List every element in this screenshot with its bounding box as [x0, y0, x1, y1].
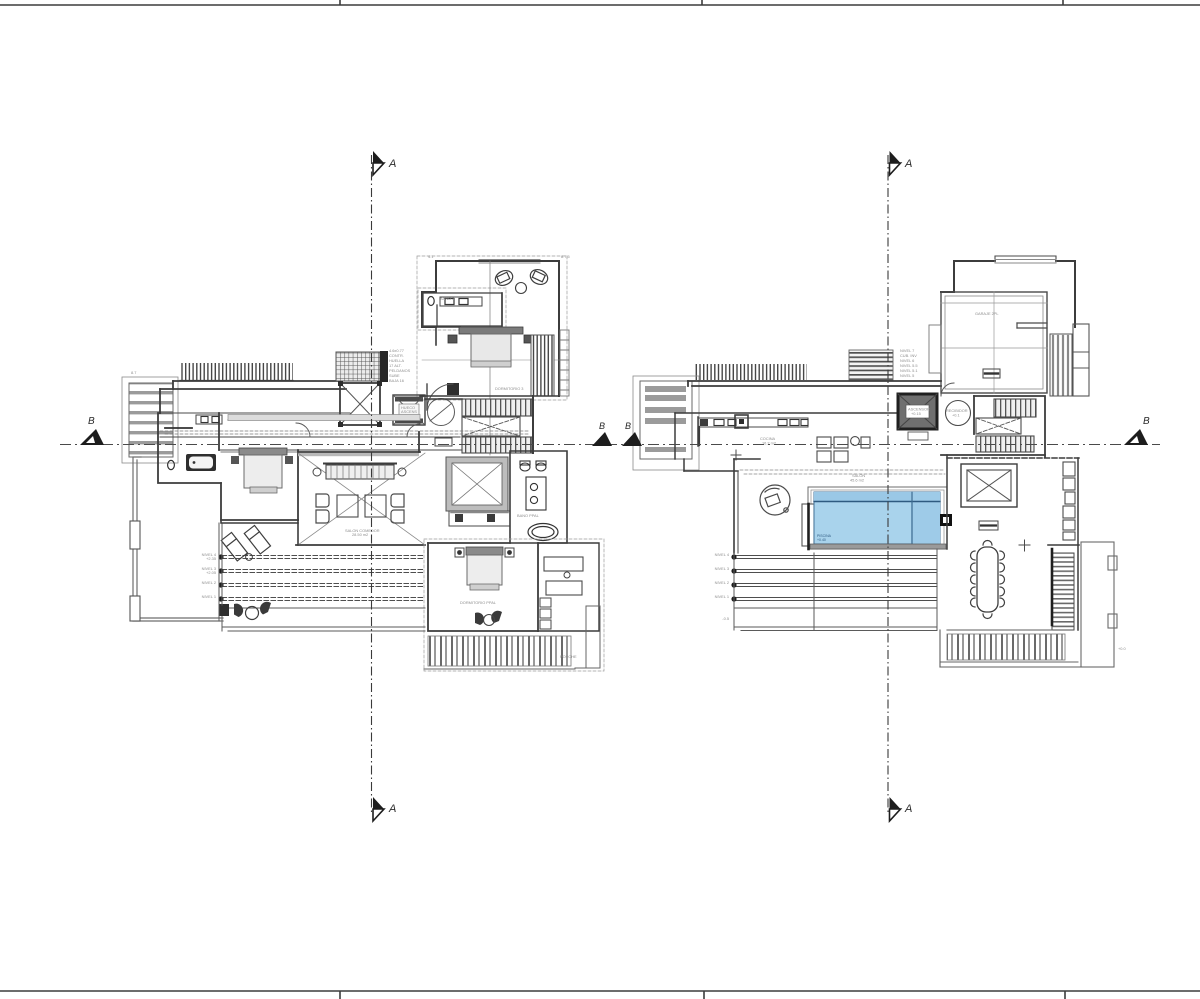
svg-text:-0.5: -0.5: [722, 616, 729, 621]
svg-text:PORCHE: PORCHE: [560, 654, 577, 659]
svg-text:B: B: [88, 416, 95, 427]
svg-text:ASCENS: ASCENS: [401, 409, 417, 414]
svg-text:NIVEL 2: NIVEL 2: [202, 580, 216, 585]
svg-text:+2.05: +2.05: [206, 570, 216, 575]
svg-text:BAJA 16: BAJA 16: [389, 378, 404, 383]
svg-text:BANO PPAL: BANO PPAL: [517, 513, 540, 518]
svg-text:8.7: 8.7: [131, 370, 136, 375]
svg-text:NIVEL 3: NIVEL 3: [715, 566, 729, 571]
svg-text:A: A: [388, 158, 396, 170]
svg-text:BANO 3: BANO 3: [440, 296, 454, 301]
svg-text:B: B: [1143, 416, 1150, 427]
svg-text:+0.1: +0.1: [952, 413, 960, 418]
svg-text:B: B: [599, 421, 605, 431]
svg-text:NIVEL 5: NIVEL 5: [900, 373, 914, 378]
svg-text:+0.40: +0.40: [817, 538, 826, 542]
svg-text:A: A: [388, 803, 396, 815]
svg-text:GARAJE 2PL: GARAJE 2PL: [975, 311, 999, 316]
svg-text:B: B: [625, 421, 631, 431]
svg-text:8.7.5: 8.7.5: [561, 254, 570, 259]
svg-text:4.1: 4.1: [428, 254, 433, 259]
svg-text:+0.15: +0.15: [911, 411, 921, 416]
svg-text:NIVEL 1: NIVEL 1: [202, 594, 216, 599]
svg-text:A: A: [904, 803, 912, 815]
svg-text:28.50 m2: 28.50 m2: [352, 532, 368, 537]
svg-text:+2.35: +2.35: [206, 556, 216, 561]
svg-text:DORMITORIO PPAL: DORMITORIO PPAL: [460, 600, 497, 605]
svg-text:NIVEL 4: NIVEL 4: [715, 552, 730, 557]
svg-text:NIVEL 1: NIVEL 1: [715, 594, 729, 599]
svg-text:45.6 m2: 45.6 m2: [850, 478, 864, 483]
svg-text:A: A: [904, 158, 912, 170]
svg-text:DORMITORIO 3: DORMITORIO 3: [495, 386, 523, 391]
svg-text:NIVEL 2: NIVEL 2: [715, 580, 729, 585]
svg-text:+0.0: +0.0: [1118, 646, 1127, 651]
